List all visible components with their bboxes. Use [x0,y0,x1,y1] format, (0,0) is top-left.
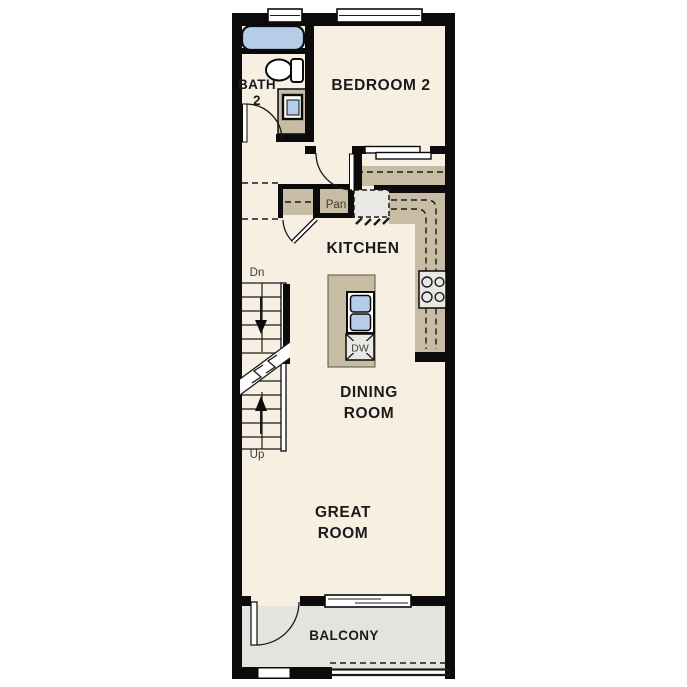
dining-label-line1: DINING [340,384,398,401]
pantry-label: Pan [326,199,346,211]
great-label-line2: ROOM [318,525,369,542]
balcony-door-opening [251,595,300,606]
kitchen-label: KITCHEN [326,240,399,257]
toilet-tank [291,59,303,82]
bedroom-door-leaf [350,154,355,191]
bedroom-wall-stub-left [305,146,316,154]
stairs-down-label: Dn [250,267,265,279]
pantry-bottom-wall [313,213,354,218]
bath-label-line2: 2 [253,93,261,108]
cooktop [419,271,446,308]
island-sink-basin-2 [351,314,371,331]
bedroom-wall-stub-right [430,146,445,154]
kitchen-sink [354,190,389,217]
wall-left [232,13,242,679]
counter-end-wall [415,352,455,362]
floorplan-svg: BATH 2 BEDROOM 2 Pan KITCHEN Dn DW DININ… [0,0,687,687]
closet-bypass-door-2 [376,153,431,160]
wall-right [445,13,455,679]
bath-door-leaf [243,104,248,142]
bath-label-line1: BATH [238,77,276,92]
balcony-door-leaf [251,602,257,645]
closet-pantry-divider [313,184,320,218]
island-sink-basin-1 [351,296,371,313]
balcony-window [325,595,411,607]
bath-bedroom-wall [305,22,314,142]
dishwasher-label: DW [351,343,369,355]
bathtub [242,26,304,50]
great-label-line1: GREAT [315,504,371,521]
bedroom2-label: BEDROOM 2 [331,77,430,94]
floorplan-canvas: BATH 2 BEDROOM 2 Pan KITCHEN Dn DW DININ… [0,0,687,687]
closet-shelf [354,166,445,186]
balcony-bottom-window [258,668,290,678]
dining-label-line2: ROOM [344,405,395,422]
balcony-label: BALCONY [309,628,379,643]
coat-closet-left-wall [278,184,283,218]
stairs-up-label: Up [250,449,265,461]
vanity-sink-basin [287,100,299,115]
